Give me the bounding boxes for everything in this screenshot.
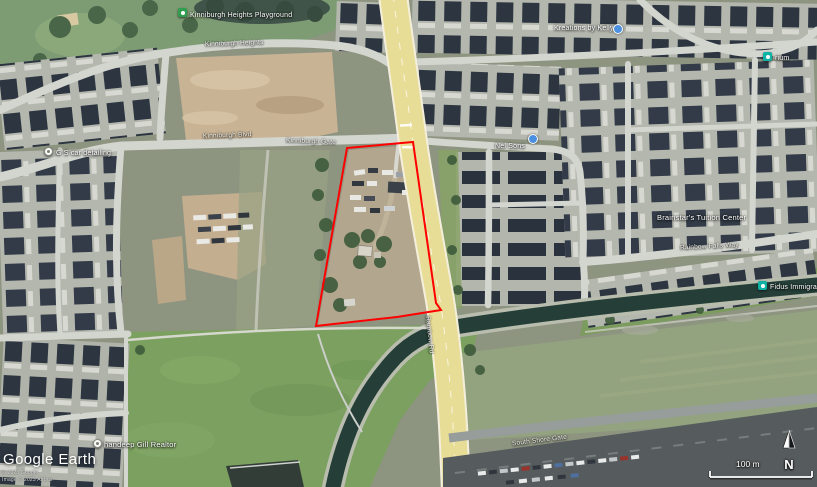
scale-bar: 100 m	[708, 459, 814, 481]
cropped-business-label[interactable]: rium	[775, 55, 789, 62]
business-marker-icon[interactable]	[763, 52, 772, 61]
park-icon[interactable]	[178, 8, 187, 17]
copyright-line-2: Image © 2023 Airbus	[2, 477, 53, 483]
playground-label[interactable]: Kinniburgh Heights Playground	[190, 12, 292, 19]
google-earth-viewport[interactable]: Kinniburgh Heights Playground Kinniburgh…	[0, 0, 817, 487]
business-marker-icon[interactable]	[613, 24, 623, 34]
north-arrow-icon	[774, 427, 804, 451]
business-marker-icon[interactable]	[528, 134, 538, 144]
scale-label: 100 m	[736, 459, 760, 469]
fidus-marker-icon[interactable]	[758, 281, 767, 290]
tuition-center-label[interactable]: Brainstar's Tuition Center	[657, 214, 746, 222]
kreations-label[interactable]: Kreations by Kelly	[554, 25, 614, 32]
fidus-label[interactable]: Fidus Immigra	[770, 284, 817, 291]
place-pin-icon[interactable]	[44, 147, 53, 156]
car-detailing-label[interactable]: G S car detailing	[56, 150, 111, 157]
google-earth-watermark: Google Earth	[3, 451, 96, 468]
copyright-line-1: © 2023 Google	[2, 470, 38, 476]
nel-sons-label[interactable]: Nel Sons	[495, 143, 525, 150]
realtor-label[interactable]: handeep Gill Realtor	[104, 441, 176, 449]
realtor-pin-icon[interactable]	[93, 439, 102, 448]
scale-bar-line	[708, 459, 814, 481]
